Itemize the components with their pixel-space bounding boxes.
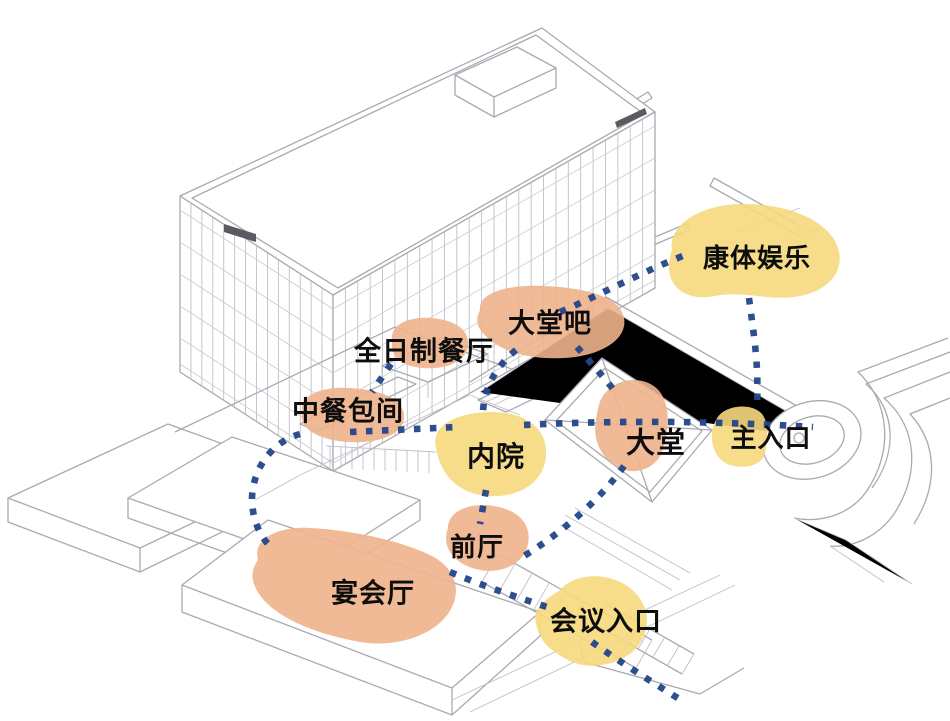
zone-label-inner-courtyard: 内院 — [467, 443, 525, 471]
ramp-lines — [560, 508, 690, 590]
zone-label-lobby: 大堂 — [626, 430, 686, 459]
path-conference-entrance-exit — [592, 642, 684, 702]
road-edge-lines — [794, 518, 912, 584]
path-lobby-to-front-hall — [524, 466, 624, 556]
path-fitness-to-main-entrance — [749, 298, 757, 404]
curved-road — [910, 398, 950, 524]
diagram-canvas: 康体娱乐 大堂吧 全日制餐厅 中餐包间 内院 大堂 主入口 前厅 宴会厅 会议入… — [0, 0, 950, 721]
zone-label-conference-entrance: 会议入口 — [550, 609, 662, 636]
zone-label-all-day-dining: 全日制餐厅 — [354, 339, 494, 366]
wireframe-line — [682, 654, 694, 674]
wireframe-line — [653, 637, 665, 657]
zone-label-chinese-private-dining: 中餐包间 — [292, 399, 404, 426]
zone-label-front-hall: 前厅 — [450, 534, 504, 560]
wireframe-line — [667, 646, 679, 666]
wireframe-line — [516, 573, 532, 601]
zone-label-banquet-hall: 宴会厅 — [331, 581, 415, 608]
zone-label-lobby-bar: 大堂吧 — [508, 311, 592, 338]
zone-label-main-entrance: 主入口 — [730, 425, 811, 451]
zone-label-fitness-recreation: 康体娱乐 — [703, 245, 811, 271]
building-wireframe — [8, 28, 950, 715]
